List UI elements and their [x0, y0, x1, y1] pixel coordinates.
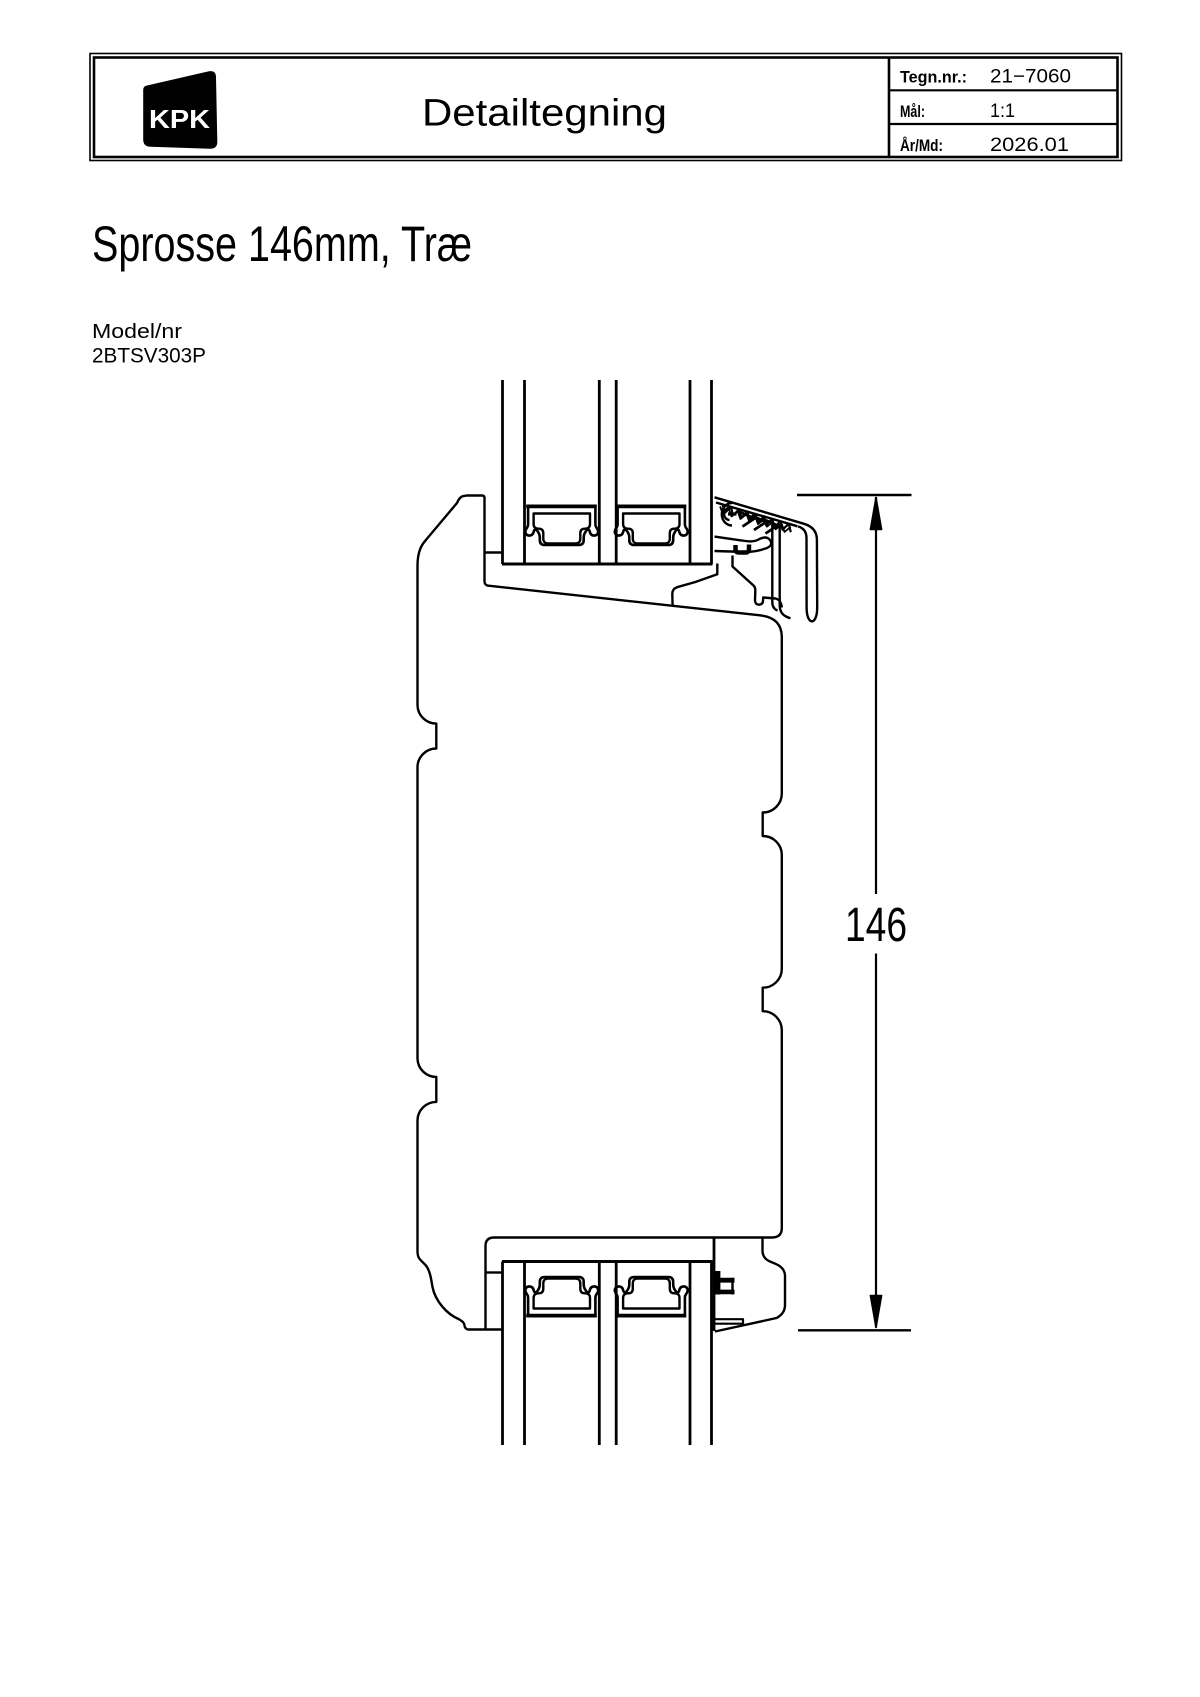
svg-text:Tegn.nr.:: Tegn.nr.:	[900, 68, 967, 87]
svg-text:Sprosse 146mm, Træ: Sprosse 146mm, Træ	[92, 216, 472, 272]
svg-text:Mål:: Mål:	[900, 102, 925, 121]
svg-text:KPK: KPK	[149, 106, 211, 134]
svg-text:År/Md:: År/Md:	[900, 136, 943, 155]
svg-text:21−7060: 21−7060	[990, 66, 1071, 88]
svg-text:146: 146	[845, 898, 907, 952]
svg-text:Model/nr: Model/nr	[92, 321, 182, 343]
svg-text:2026.01: 2026.01	[990, 134, 1069, 156]
svg-text:2BTSV303P: 2BTSV303P	[92, 345, 206, 368]
svg-text:Detailtegning: Detailtegning	[422, 93, 667, 135]
svg-text:1:1: 1:1	[990, 100, 1015, 122]
